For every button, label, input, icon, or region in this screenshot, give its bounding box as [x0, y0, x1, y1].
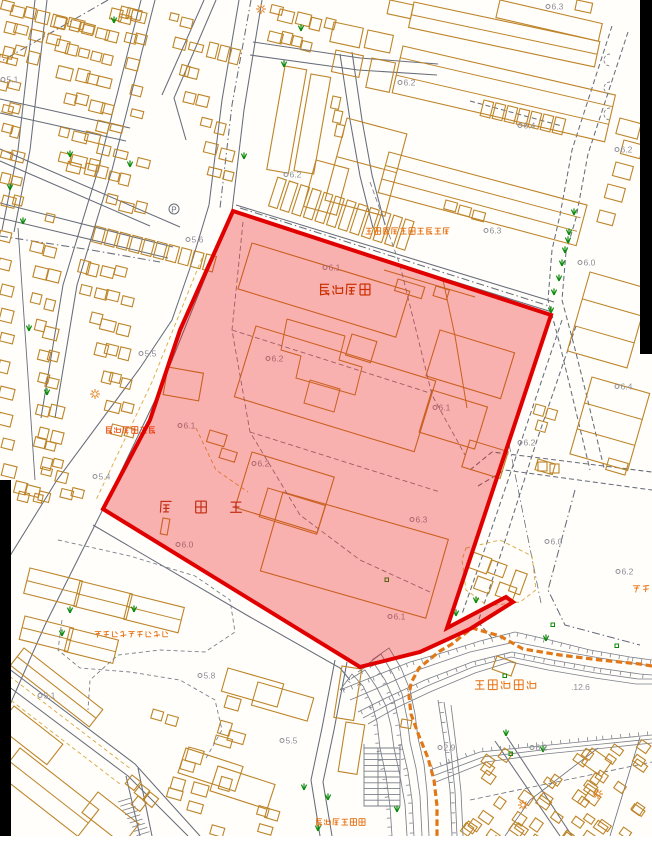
svg-text:6.0: 6.0: [584, 258, 596, 268]
svg-text:6.4: 6.4: [524, 121, 536, 131]
svg-text:6.2: 6.2: [290, 170, 302, 180]
svg-text:5.1: 5.1: [44, 691, 56, 701]
svg-text:2.9: 2.9: [444, 743, 456, 753]
svg-text:6.2: 6.2: [536, 743, 548, 753]
svg-text:6.2: 6.2: [622, 567, 634, 577]
svg-text:.12.6: .12.6: [571, 682, 590, 692]
svg-text:5.1: 5.1: [7, 75, 19, 85]
svg-text:6.3: 6.3: [490, 226, 502, 236]
svg-text:6.0: 6.0: [551, 537, 563, 547]
svg-text:6.3: 6.3: [552, 2, 564, 12]
svg-text:5.4: 5.4: [99, 472, 111, 482]
svg-text:5.8: 5.8: [204, 671, 216, 681]
svg-text:6.2: 6.2: [524, 438, 536, 448]
svg-text:5.5: 5.5: [286, 736, 298, 746]
svg-text:6.4: 6.4: [621, 382, 633, 392]
svg-text:6.2: 6.2: [621, 145, 633, 155]
svg-text:5.5: 5.5: [145, 349, 157, 359]
svg-text:6.2: 6.2: [404, 78, 416, 88]
svg-text:5.6: 5.6: [192, 235, 204, 245]
svg-text:P: P: [171, 206, 176, 215]
